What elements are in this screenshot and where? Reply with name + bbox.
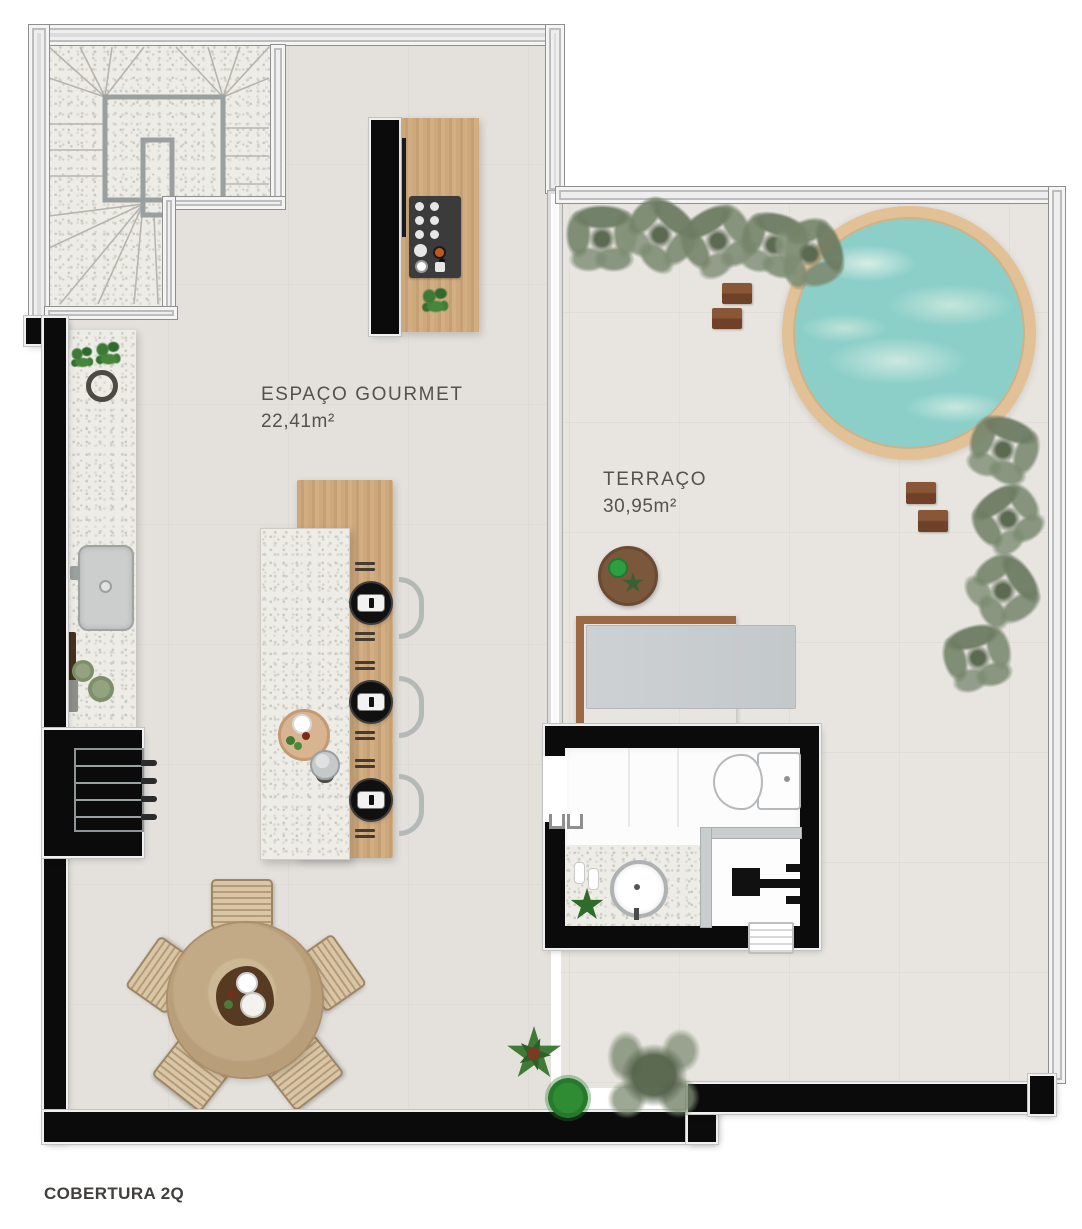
room-name: ESPAÇO GOURMET: [261, 381, 464, 408]
bathroom-tile-joint: [628, 748, 630, 827]
dining-chair: [211, 879, 273, 929]
candle: [574, 862, 585, 884]
shower-valve: [786, 896, 800, 904]
terrace-tree: [598, 1018, 710, 1128]
stool-seat: [357, 594, 385, 612]
burner-knob: [430, 230, 439, 239]
centerpiece-herb: [224, 1000, 233, 1009]
built-in-grill: [74, 748, 144, 832]
herb-pot: [72, 660, 94, 682]
cabinet-handle: [402, 138, 406, 237]
counter-plant: [416, 282, 454, 318]
kitchen-tall-cabinet: [371, 120, 399, 334]
tray-herb: [294, 742, 302, 750]
bathroom-door: [748, 922, 794, 954]
place-setting: [355, 632, 375, 642]
centerpiece-fruit: [228, 990, 235, 997]
burner-ring: [415, 260, 428, 273]
shower-column: [732, 868, 760, 896]
deck-paver: [906, 482, 936, 504]
left-counter-plant: [90, 336, 126, 370]
decor-ring: [86, 370, 118, 402]
place-setting: [355, 562, 375, 572]
wall-stair-step: [164, 196, 286, 210]
grill-handle: [141, 814, 157, 820]
burner-active: [433, 246, 446, 259]
burner-knob: [415, 216, 424, 225]
room-label-gourmet: ESPAÇO GOURMET 22,41m²: [261, 381, 464, 435]
grill-handle: [141, 796, 157, 802]
sun-lounger-cushion: [586, 625, 796, 709]
wall-left-upper: [28, 24, 50, 328]
wall-top-gourmet: [28, 24, 565, 46]
place-setting: [355, 731, 375, 741]
place-setting: [355, 829, 375, 839]
shower-partition: [700, 827, 712, 928]
toilet-flush-button: [784, 776, 790, 782]
wall-stair-inner: [162, 196, 176, 316]
door-jamb: [549, 814, 565, 829]
wall-left-main: [44, 318, 66, 1140]
burner-knob: [415, 202, 424, 211]
vanity-faucet: [634, 908, 639, 920]
place-setting: [355, 661, 375, 671]
shower-arm: [760, 879, 800, 888]
toilet-bowl: [713, 754, 763, 810]
wall-bottom-terrace: [688, 1084, 1052, 1112]
room-area: 30,95m²: [603, 493, 707, 520]
bar-stool: [351, 583, 391, 623]
room-label-terraco: TERRAÇO 30,95m²: [603, 466, 707, 520]
grill-handle: [141, 760, 157, 766]
shower-partition: [700, 827, 802, 839]
bathroom-tile-joint: [677, 748, 679, 827]
cooktop: [409, 196, 461, 278]
floor-plan-canvas: ESPAÇO GOURMET 22,41m² TERRAÇO 30,95m² C…: [0, 0, 1082, 1229]
centerpiece-plate: [236, 972, 258, 994]
bathroom-door-opening: [543, 756, 567, 822]
side-table-drink: [608, 558, 628, 578]
stool-seat: [357, 693, 385, 711]
staircase-treads: [46, 44, 272, 308]
room-name: TERRAÇO: [603, 466, 707, 493]
place-setting: [355, 759, 375, 769]
tray-plate: [292, 714, 312, 734]
side-table: [598, 546, 658, 606]
bar-stool: [351, 780, 391, 820]
wall-terrace-right: [1048, 186, 1066, 1084]
grill-handle: [141, 778, 157, 784]
sink-faucet: [70, 566, 80, 580]
wall-stair-right: [270, 44, 286, 206]
centerpiece-plate: [240, 992, 266, 1018]
burner-knob: [430, 202, 439, 211]
round-bush: [542, 1072, 594, 1124]
wall-divider-upper: [545, 24, 565, 194]
control-pad: [435, 262, 445, 272]
burner-large: [414, 244, 427, 257]
wall-corner-right: [1030, 1076, 1054, 1114]
stair-railing: [105, 97, 223, 200]
bar-stool: [351, 682, 391, 722]
tray-fruit: [302, 732, 310, 740]
vanity-drain: [634, 884, 640, 890]
room-area: 22,41m²: [261, 408, 464, 435]
herb-pot: [88, 676, 114, 702]
bromeliad-core: [527, 1047, 540, 1060]
deck-paver: [918, 510, 948, 532]
candle: [588, 868, 599, 890]
utensil-holder: [66, 680, 78, 712]
shower-valve: [786, 864, 800, 872]
burner-knob: [430, 216, 439, 225]
plan-title: COBERTURA 2Q: [44, 1184, 184, 1204]
toilet-tank: [757, 752, 801, 810]
door-jamb: [567, 814, 583, 829]
stool-seat: [357, 791, 385, 809]
island-granite-slab: [260, 528, 350, 860]
burner-knob: [415, 230, 424, 239]
sink-drain: [99, 580, 112, 593]
deck-paver: [722, 283, 752, 304]
deck-paver: [712, 308, 742, 329]
